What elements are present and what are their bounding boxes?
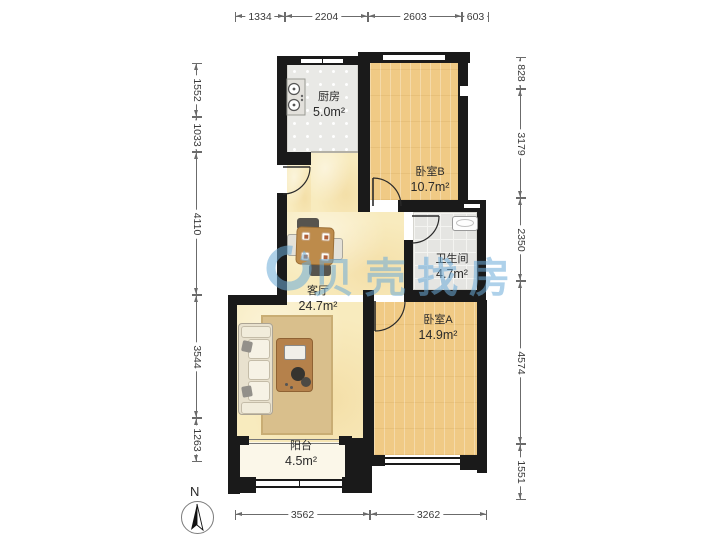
kitchen-hall-divider: [311, 151, 358, 153]
window-bedroom-b: [383, 53, 445, 62]
plate: [321, 232, 330, 241]
dim-left-2: 1033: [190, 117, 204, 152]
wall-segment: [277, 56, 287, 165]
wall-notch: [460, 86, 468, 96]
plate: [300, 252, 309, 261]
decor-dot: [290, 386, 293, 389]
wall-tab: [236, 436, 249, 445]
dim-bottom-2: 3262: [370, 508, 487, 522]
floor-plan: 厨房 5.0m² 卧室B 10.7m² 卫生间 4.7m² 客厅 24.7m² …: [0, 0, 720, 540]
sink-icon: [452, 216, 478, 231]
compass-north-label: N: [190, 484, 199, 499]
window-kitchen: [301, 57, 343, 65]
wall-tab: [339, 436, 352, 445]
dim-top-2: 2204: [285, 10, 368, 24]
window-bedroom-a: [385, 457, 460, 465]
balcony-name: 阳台: [285, 440, 317, 454]
dim-right-2: 3179: [514, 89, 528, 198]
balcony-label: 阳台 4.5m²: [285, 440, 317, 469]
dim-left-1: 1552: [190, 63, 204, 117]
sofa-cushion: [248, 360, 270, 380]
dim-left-5: 1263: [190, 418, 204, 462]
watermark-text: 贝壳找房: [313, 244, 521, 304]
bedroom-a-name: 卧室A: [419, 314, 458, 328]
bedroom-a-area: 14.9m²: [419, 328, 458, 344]
wall-segment: [363, 290, 374, 460]
kitchen-name: 厨房: [313, 91, 345, 105]
dim-top-4: 603: [462, 10, 489, 24]
bedroom-b-label: 卧室B 10.7m²: [411, 166, 450, 195]
decor-ball: [301, 377, 311, 387]
coffee-table-icon: [276, 338, 313, 392]
wall-segment: [277, 193, 287, 305]
tray: [284, 345, 306, 360]
dim-bottom-1: 3562: [235, 508, 370, 522]
compass-icon: [181, 501, 214, 534]
dim-left-4: 3544: [190, 295, 204, 418]
dim-right-5: 1551: [514, 444, 528, 500]
sofa-pillow: [241, 385, 253, 398]
kitchen-label: 厨房 5.0m²: [313, 91, 345, 120]
dim-right-4: 4574: [514, 281, 528, 444]
sofa-armrest: [241, 402, 271, 414]
kitchen-area: 5.0m²: [313, 105, 345, 121]
dim-top-3: 2603: [368, 10, 462, 24]
dim-top-1: 1334: [235, 10, 285, 24]
dim-right-1: 828: [514, 57, 528, 89]
wall-segment: [458, 52, 468, 212]
wall-segment: [358, 52, 370, 212]
wall-segment: [460, 455, 487, 470]
wall-segment: [228, 477, 256, 493]
sofa-icon: [238, 323, 273, 415]
balcony-area: 4.5m²: [285, 454, 317, 470]
plate: [301, 232, 310, 241]
wall-segment: [345, 438, 372, 493]
bedroom-b-area: 10.7m²: [411, 180, 450, 196]
bedroom-b-name: 卧室B: [411, 166, 450, 180]
decor-dot: [285, 383, 288, 386]
wall-segment: [477, 300, 487, 473]
bedroom-a-label: 卧室A 14.9m²: [419, 314, 458, 343]
wall-segment: [277, 152, 311, 165]
window-balcony: [256, 479, 342, 488]
hall-floor-2: [287, 165, 311, 213]
dim-left-3: 4110: [190, 152, 204, 295]
window-right-small: [464, 202, 480, 210]
hall-floor-1: [311, 153, 358, 213]
sofa-armrest: [241, 326, 271, 338]
